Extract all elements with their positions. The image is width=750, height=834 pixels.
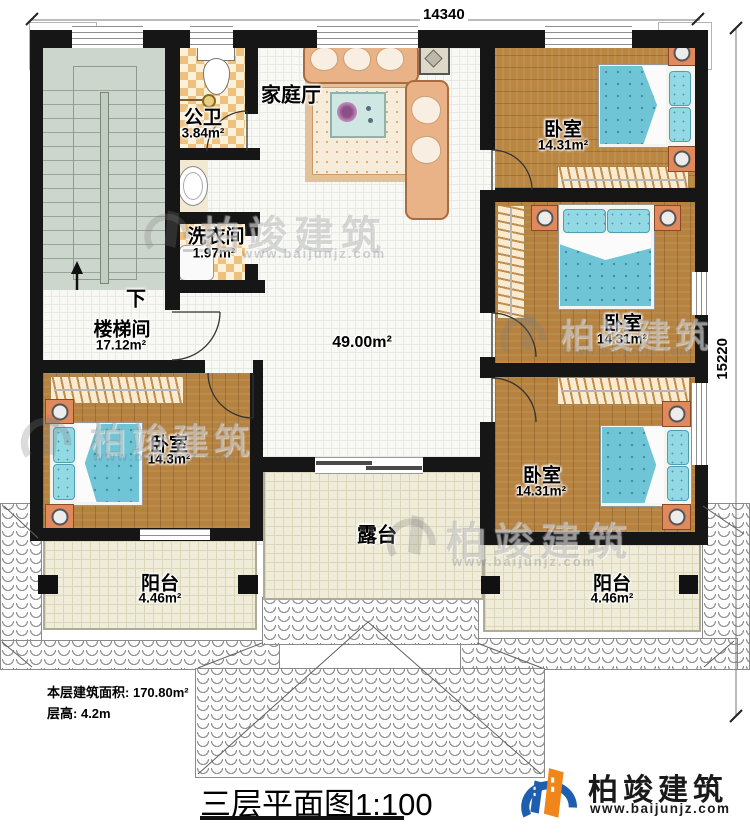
nightstand [531, 205, 558, 231]
wall-laundry-right [245, 264, 258, 292]
washbasin-inner [183, 172, 203, 200]
watermark-url: www.baijunjz.com [242, 246, 386, 261]
room-area-balcony-left: 4.46m² [139, 591, 182, 606]
floor-height-note: 层高: 4.2m [47, 703, 111, 722]
window [545, 26, 632, 48]
nightstand [668, 146, 696, 172]
side-table-decor [424, 49, 442, 67]
nightstand [662, 504, 691, 530]
roof-right-band [460, 638, 738, 670]
window [72, 26, 143, 48]
watermark-url: www.baijunjz.com [452, 554, 596, 569]
flower-decor [337, 102, 357, 122]
window [691, 383, 708, 465]
floor-height-value: 4.2m [81, 706, 111, 721]
bed-pillow [669, 71, 691, 106]
wardrobe [497, 205, 525, 319]
balcony-column [481, 576, 500, 594]
wall-hall-right-1 [480, 48, 495, 150]
window [140, 529, 210, 540]
watermark-icon [496, 306, 552, 362]
dimension-tick [730, 710, 742, 722]
stair-center-rail [100, 92, 109, 284]
window [317, 26, 418, 48]
balcony-column [38, 575, 58, 594]
coffee-table [330, 92, 386, 138]
bed-pillow [53, 464, 75, 500]
floor-area-note: 本层建筑面积: 170.80m² [47, 682, 189, 701]
hall-area-label: 49.00m² [332, 334, 392, 352]
wall-hall-right-2 [480, 190, 495, 313]
balcony-column [679, 575, 698, 594]
wall-stair-right [165, 48, 180, 310]
bed-pillow [669, 107, 691, 142]
bed-pillow [563, 209, 606, 233]
watermark-icon [16, 406, 78, 468]
watermark-icon [382, 506, 442, 568]
window [190, 26, 233, 48]
logo-url: www.baijunjz.com [590, 801, 731, 816]
logo-icon [514, 764, 580, 824]
bed-pillow [667, 466, 689, 501]
floor-area-label: 本层建筑面积: [47, 685, 129, 700]
floor-height-label: 层高: [47, 706, 77, 721]
watermark-url: www.baijunjz.com [564, 344, 692, 358]
sliding-door [315, 457, 423, 474]
side-table [419, 44, 450, 75]
wall-bedroom-divider-1 [495, 188, 708, 202]
wall-bath-right [245, 48, 258, 114]
watermark-url: www.baijunjz.com [93, 449, 237, 464]
floor-plan: 家庭厅 公卫 3.84m² 洗衣间 1.97m² 下 楼梯间 17.12m² 4… [0, 0, 750, 834]
room-area-balcony-right: 4.46m² [591, 591, 634, 606]
wall-stairhall-bottom [30, 360, 205, 373]
wall-stairhall-bottom-stub [253, 360, 263, 373]
floor-area-value: 170.80m² [133, 685, 189, 700]
room-area-bedroom-tr: 14.31m² [538, 138, 588, 153]
roof-left-band [0, 640, 280, 670]
dimension-tick [730, 22, 742, 34]
nightstand [45, 504, 74, 529]
table-dot [366, 106, 371, 111]
bed-pillow [667, 430, 689, 465]
wall-terrace-left [258, 457, 315, 472]
title-underline [200, 816, 404, 820]
room-area-stairwell: 17.12m² [96, 338, 146, 353]
wall-bath-right-stub [245, 148, 258, 160]
room-area-bedroom-br: 14.31m² [516, 484, 566, 499]
washbasin [178, 166, 208, 206]
sliding-door-panel [366, 466, 422, 470]
room-area-bath: 3.84m² [182, 126, 225, 141]
room-label-family-hall: 家庭厅 [261, 79, 321, 108]
stair-down-label: 下 [126, 283, 146, 312]
roof-center-main [195, 668, 545, 778]
roof-center-upper [262, 597, 479, 645]
table-dot [368, 118, 373, 123]
nightstand [662, 401, 691, 427]
wall-terrace-right [423, 457, 483, 472]
balcony-column [238, 575, 258, 594]
dimension-height: 15220 [714, 335, 731, 383]
wall-bedroom-divider-2 [480, 363, 708, 377]
nightstand [654, 205, 681, 231]
watermark-icon [140, 203, 196, 259]
bed-pillow [607, 209, 650, 233]
sliding-door-panel [316, 461, 372, 465]
dimension-width: 14340 [420, 6, 468, 23]
